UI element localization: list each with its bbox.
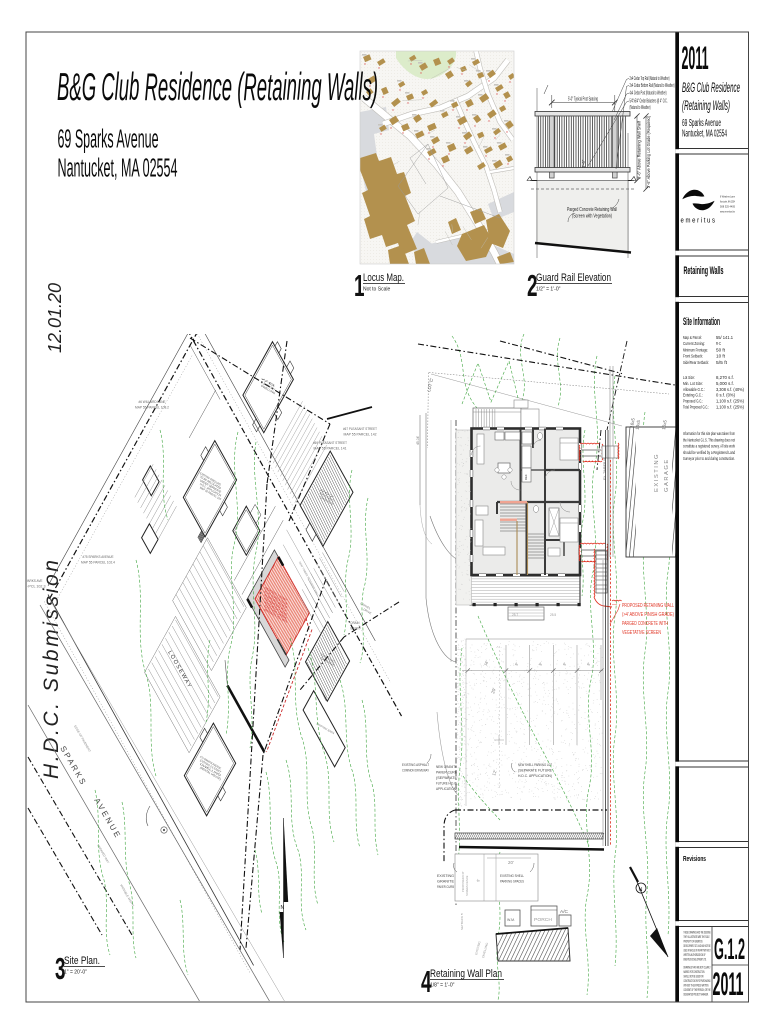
svg-text:EXISTING SHELL: EXISTING SHELL [500, 874, 524, 878]
svg-text:3'-6" Above Retaining Wall She: 3'-6" Above Retaining Wall Shelf [637, 120, 642, 179]
svg-text:(Natural to Weather): (Natural to Weather) [630, 105, 651, 111]
svg-text:PAVER CURB: PAVER CURB [436, 771, 457, 775]
svg-text:5'-0" Typical Post Spacing: 5'-0" Typical Post Spacing [568, 97, 598, 103]
svg-text:GRANITE: GRANITE [437, 880, 455, 884]
svg-text:WITHOUT THE EXPRESS WRITTEN: WITHOUT THE EXPRESS WRITTEN [684, 984, 709, 988]
svg-text:3,308 s.f. (40%): 3,308 s.f. (40%) [716, 387, 744, 392]
svg-text:1,100 s.f. (25%): 1,100 s.f. (25%) [716, 399, 744, 404]
svg-text:SETBACK 5': SETBACK 5' [460, 912, 464, 930]
svg-text:1,100 s.f. (25%): 1,100 s.f. (25%) [716, 405, 744, 410]
svg-text:Revisions: Revisions [683, 854, 706, 863]
svg-text:EXISTING: EXISTING [437, 874, 454, 878]
svg-text:5/5 ft: 5/5 ft [716, 360, 728, 365]
svg-text:MAP 55 PARCEL 141: MAP 55 PARCEL 141 [314, 447, 347, 451]
svg-text:20': 20' [508, 860, 514, 865]
svg-text:10 ft: 10 ft [716, 354, 726, 359]
svg-text:WRITTEN AUTHORIZATION OF: WRITTEN AUTHORIZATION OF [684, 953, 706, 957]
svg-text:6 Whalers Lane: 6 Whalers Lane [720, 195, 735, 199]
svg-text:2x4 Cedar Bottom Rail (Natural: 2x4 Cedar Bottom Rail (Natural to Weathe… [630, 83, 675, 89]
svg-text:—: — [612, 602, 617, 608]
svg-text:DRAIN: DRAIN [351, 621, 360, 625]
svg-text:Total Proposed G.C.:: Total Proposed G.C.: [683, 405, 709, 410]
svg-text:#6 WILLARD LANE: #6 WILLARD LANE [139, 400, 167, 404]
svg-text:N: N [639, 887, 643, 893]
svg-text:(SEPARATE FUTURE: (SEPARATE FUTURE [518, 769, 552, 773]
svg-text:DESIGNATED PROJECT MANAGER.: DESIGNATED PROJECT MANAGER. [684, 993, 709, 997]
svg-text:Locus Map.: Locus Map. [363, 272, 404, 284]
svg-text:1/2" = 1'-0": 1/2" = 1'-0" [536, 287, 561, 293]
svg-text:PAVER CURB: PAVER CURB [437, 885, 454, 889]
svg-text:Min. Lot Size:: Min. Lot Size: [683, 381, 703, 386]
svg-text:5/4"x5/4" Cedar Balusters @ 4": 5/4"x5/4" Cedar Balusters @ 4" O.C. [630, 99, 668, 105]
svg-text:MARKED FOR CONSTRUCTION: MARKED FOR CONSTRUCTION [684, 970, 705, 974]
svg-text:25.5: 25.5 [550, 613, 556, 617]
svg-text:Map & Parcel:: Map & Parcel: [683, 335, 702, 340]
svg-text:25.7: 25.7 [512, 613, 518, 617]
svg-text:EXISTING: EXISTING [654, 453, 660, 492]
svg-text:#67 PLEASANT STREET: #67 PLEASANT STREET [343, 427, 378, 431]
svg-text:constitute a registered survey: constitute a registered survey. All site… [683, 444, 735, 449]
svg-text:THEY ILLUSTRATE ARE THE SOLE: THEY ILLUSTRATE ARE THE SOLE [684, 935, 710, 939]
svg-text:N: N [281, 905, 285, 911]
svg-text:PARGED CONCRETE WITH: PARGED CONCRETE WITH [622, 621, 668, 627]
svg-text:Retaining Walls: Retaining Walls [684, 265, 724, 277]
svg-text:Minimum Frontage:: Minimum Frontage: [683, 347, 708, 352]
svg-text:69 Sparks Avenue: 69 Sparks Avenue [58, 126, 159, 154]
svg-text:Allowable G.C.:: Allowable G.C.: [683, 387, 705, 392]
svg-text:SHOULD NOT BE USED FOR: SHOULD NOT BE USED FOR [684, 975, 704, 979]
svg-text:Existing G.C.:: Existing G.C.: [683, 393, 703, 398]
svg-text:MAP 55 PARCEL 102.4: MAP 55 PARCEL 102.4 [81, 561, 115, 565]
svg-text:R-C: R-C [716, 341, 721, 346]
svg-text:APPLICATION): APPLICATION) [436, 787, 457, 791]
svg-text:Guard Rail Elevation: Guard Rail Elevation [536, 272, 611, 284]
svg-text:3'-6": 3'-6" [581, 159, 586, 168]
svg-text:B&G Club Residence: B&G Club Residence [682, 79, 740, 95]
svg-text:EMERITUS DEVELOPMENT LTD.: EMERITUS DEVELOPMENT LTD. [684, 958, 707, 962]
svg-text:2011: 2011 [682, 40, 709, 76]
svg-text:the Nantucket G.I.S. This draw: the Nantucket G.I.S. This drawing does n… [683, 437, 735, 442]
svg-text:CONSENT OF THE PERSON, OR THE: CONSENT OF THE PERSON, OR THE [684, 988, 711, 992]
svg-text:VEGETATIVE SCREEN: VEGETATIVE SCREEN [622, 630, 661, 636]
svg-text:#69 PLEASANT STREET: #69 PLEASANT STREET [313, 441, 348, 445]
svg-text:e m e r i t u s: e m e r i t u s [681, 218, 716, 225]
svg-text:THESE DRAWINGS AND THE DESIGNS: THESE DRAWINGS AND THE DESIGNS [684, 931, 711, 935]
svg-text:DEVELOPMENT LTD. AND MAY NOT B: DEVELOPMENT LTD. AND MAY NOT BE [684, 944, 711, 948]
svg-text:MAP 55 PARCEL 142: MAP 55 PARCEL 142 [344, 433, 377, 437]
svg-text:GARAGE: GARAGE [664, 458, 670, 492]
svg-text:Site Information: Site Information [683, 316, 720, 328]
svg-text:8,270 s.f.: 8,270 s.f. [716, 375, 734, 380]
svg-text:Current Zoning:: Current Zoning: [683, 341, 705, 346]
svg-text:Not to Scale: Not to Scale [363, 287, 390, 293]
svg-text:PARKING SPACES: PARKING SPACES [500, 880, 524, 884]
svg-text:Front Setback:: Front Setback: [683, 354, 703, 359]
svg-text:PROPERTY OF EMERITUS: PROPERTY OF EMERITUS [684, 940, 703, 944]
svg-text:Surveyor prior to and during c: Surveyor prior to and during constructio… [683, 456, 735, 461]
svg-text:2011: 2011 [713, 966, 744, 1002]
svg-text:PROPOSED 6 FT: PROPOSED 6 FT [461, 871, 465, 892]
svg-text:55/ 141.1: 55/ 141.1 [716, 335, 733, 340]
svg-text:NEW SHELL PARKING LOT: NEW SHELL PARKING LOT [518, 763, 553, 767]
svg-text:DRAWINGS THAT ARE NOT CLEARLY: DRAWINGS THAT ARE NOT CLEARLY [684, 966, 711, 970]
svg-text:(>4' ABOVE FINISH GRADE): (>4' ABOVE FINISH GRADE) [622, 612, 674, 618]
svg-text:5,000 s.f.: 5,000 s.f. [716, 381, 734, 386]
svg-text:1" = 20'-0": 1" = 20'-0" [64, 970, 87, 976]
svg-text:NEW GRANITE: NEW GRANITE [436, 765, 457, 769]
svg-text:BASIN: BASIN [351, 627, 360, 631]
svg-text:Retaining Wall Plan: Retaining Wall Plan [430, 968, 502, 980]
svg-text:FUTURE H.D.C.: FUTURE H.D.C. [436, 782, 457, 786]
svg-text:Proposed G.C.:: Proposed G.C.: [683, 399, 703, 404]
svg-text:H.D.C. APPLICATION): H.D.C. APPLICATION) [518, 774, 552, 778]
svg-text:12.01.20: 12.01.20 [45, 283, 65, 353]
svg-text:0 s.f. (0%): 0 s.f. (0%) [716, 393, 735, 398]
svg-text:Side/Rear Setback:: Side/Rear Setback: [683, 360, 709, 365]
svg-text:Site Plan.: Site Plan. [64, 955, 100, 967]
svg-text:W.M.: W.M. [507, 918, 515, 922]
svg-text:PORCH: PORCH [534, 917, 553, 923]
svg-text:508 325 4405: 508 325 4405 [720, 205, 735, 209]
svg-text:EXISTING ASPHALT: EXISTING ASPHALT [402, 763, 430, 767]
svg-text:USED IN WHOLE OR IN PART WITHO: USED IN WHOLE OR IN PART WITHOUT [684, 949, 711, 953]
svg-text:3'-6" Above Parking Lot Grade: 3'-6" Above Parking Lot Grade (Required) [646, 116, 651, 188]
svg-text:2x4 Cedar Top Rail (Natural to: 2x4 Cedar Top Rail (Natural to Weather) [630, 76, 670, 82]
svg-text:COMMON DRIVEWAY: COMMON DRIVEWAY [402, 769, 429, 773]
svg-text:Nantucket, MA 02554: Nantucket, MA 02554 [58, 155, 178, 183]
svg-text:A/C: A/C [560, 909, 569, 915]
svg-text:(Retaining Walls): (Retaining Walls) [682, 97, 730, 113]
svg-text:45.04': 45.04' [416, 436, 420, 445]
svg-text:should be verified by a Regist: should be verified by a Registered Land [683, 450, 735, 455]
svg-text:Nantucket, MA 02554: Nantucket, MA 02554 [682, 129, 727, 140]
svg-text:CONSTRUCTION OR FOR PURCHASING: CONSTRUCTION OR FOR PURCHASING [684, 979, 711, 983]
svg-text:G.1.2: G.1.2 [714, 933, 745, 966]
svg-text:www.emeritus.biz: www.emeritus.biz [720, 210, 735, 214]
svg-text:#75 SPARKS AVENUE: #75 SPARKS AVENUE [83, 555, 115, 559]
svg-text:Information for this site plan: Information for this site plan was taken… [683, 431, 735, 436]
svg-text:PROPOSED RETAINING WALL: PROPOSED RETAINING WALL [622, 603, 674, 609]
svg-text:B&G Club Residence (Retaining: B&G Club Residence (Retaining Walls) [57, 66, 378, 109]
svg-text:(SEPARATE: (SEPARATE [436, 776, 458, 780]
svg-text:50 ft: 50 ft [716, 347, 726, 352]
svg-text:1/8" = 1'-0": 1/8" = 1'-0" [430, 983, 455, 989]
svg-text:Lot Size:: Lot Size: [683, 375, 695, 380]
svg-text:Nantucket, MA 02554: Nantucket, MA 02554 [720, 200, 735, 204]
svg-text:69 Sparks Avenue: 69 Sparks Avenue [682, 118, 721, 129]
svg-text:4x4 Cedar Post (Natural to Wea: 4x4 Cedar Post (Natural to Weather) [630, 91, 667, 97]
svg-text:(Screen with Vegetation): (Screen with Vegetation) [572, 214, 612, 220]
svg-text:REF.: REF. [524, 474, 528, 480]
svg-text:SCREEN FENCE: SCREEN FENCE [465, 875, 469, 896]
svg-text:MAP 55 PARCEL 108.2: MAP 55 PARCEL 108.2 [135, 406, 169, 410]
svg-text:Parged Concrete Retaining Wall: Parged Concrete Retaining Wall [567, 207, 617, 213]
